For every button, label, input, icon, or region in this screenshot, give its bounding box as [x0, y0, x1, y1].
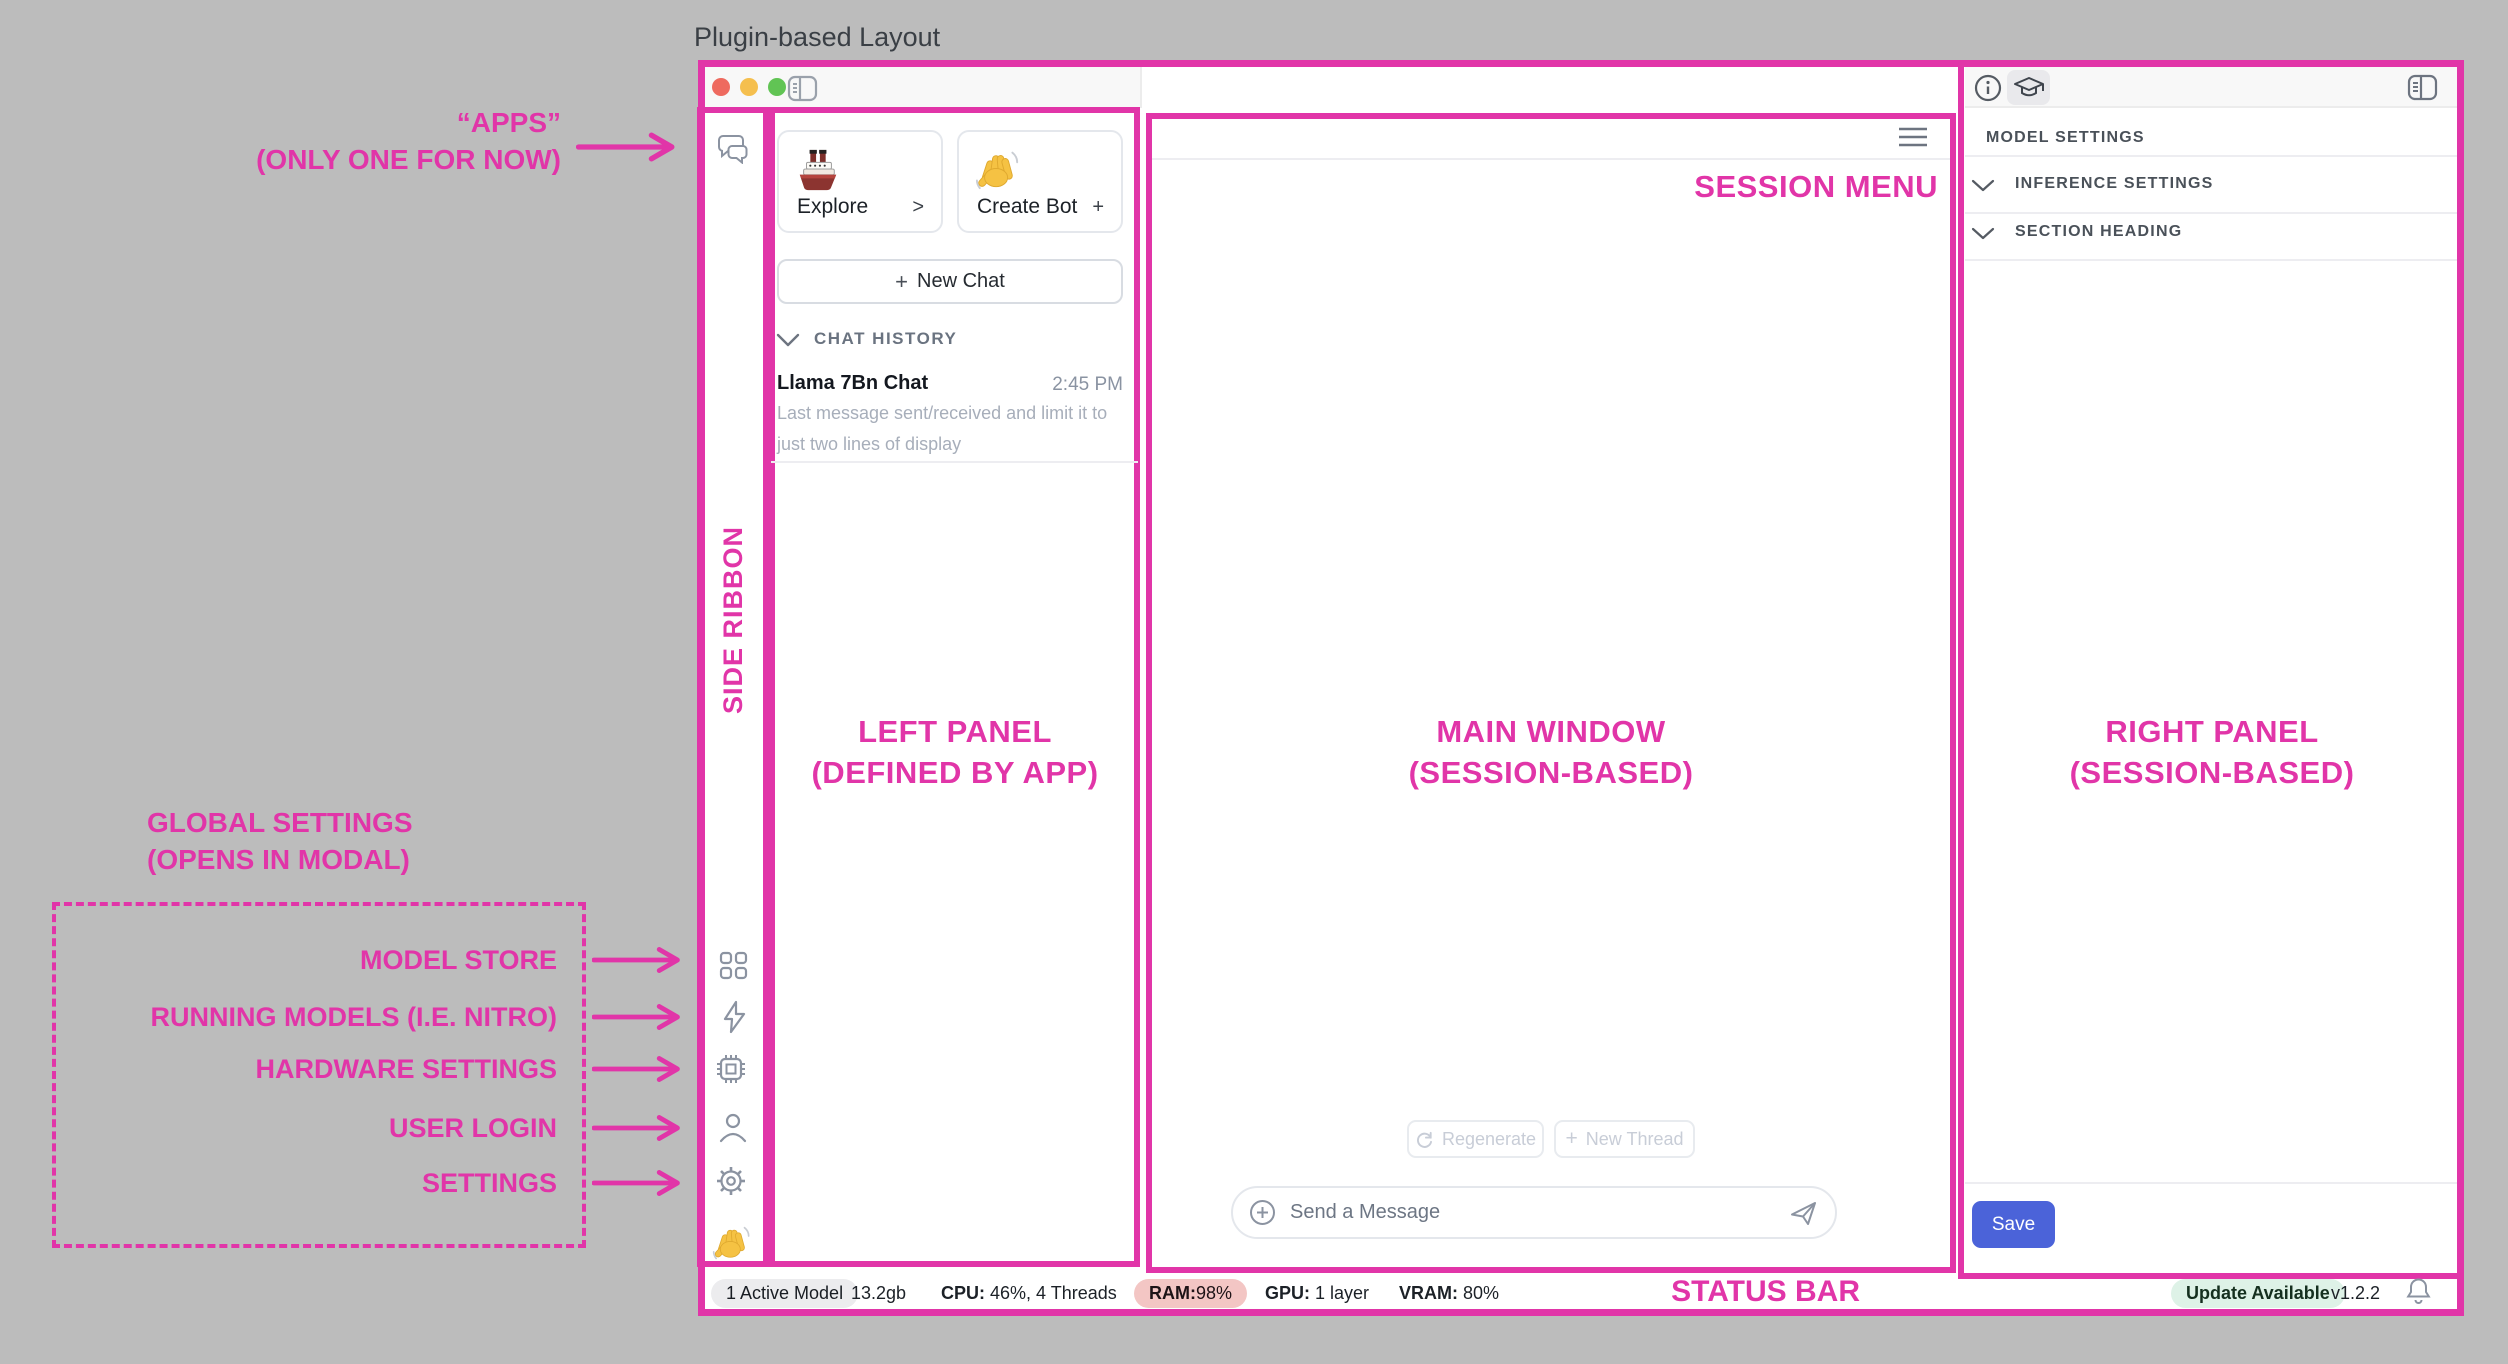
- chat-item-time: 2:45 PM: [1003, 374, 1123, 396]
- row-divider: [1965, 212, 2457, 214]
- memory-usage: 13.2gb: [851, 1283, 906, 1304]
- cpu-usage: CPU: 46%, 4 Threads: [941, 1283, 1117, 1304]
- send-icon[interactable]: [1789, 1199, 1819, 1227]
- explore-card[interactable]: Explore >: [777, 130, 943, 233]
- update-available-badge[interactable]: Update Available: [2171, 1279, 2345, 1308]
- main-window-box: [1146, 113, 1956, 1273]
- side-ribbon-annotation: SIDE RIBBON: [711, 520, 755, 720]
- model-settings-header: MODEL SETTINGS: [1986, 129, 2145, 147]
- settings-gear-icon[interactable]: [714, 1164, 748, 1198]
- close-window-button[interactable]: [712, 78, 730, 96]
- attach-plus-icon[interactable]: [1249, 1199, 1276, 1226]
- inference-settings-row[interactable]: INFERENCE SETTINGS: [2015, 175, 2214, 193]
- regenerate-button-label: Regenerate: [1442, 1129, 1536, 1150]
- wave-hand-icon[interactable]: [710, 1221, 754, 1261]
- section-heading-row[interactable]: SECTION HEADING: [2015, 223, 2182, 241]
- minimize-window-button[interactable]: [740, 78, 758, 96]
- model-store-annotation: MODEL STORE: [57, 945, 557, 976]
- running-models-arrow: [592, 1003, 688, 1031]
- user-login-arrow: [592, 1114, 688, 1142]
- main-window-annotation: MAIN WINDOW (SESSION-BASED): [1371, 711, 1731, 793]
- status-bar-annotation: STATUS BAR: [1598, 1275, 1860, 1309]
- user-login-icon[interactable]: [716, 1110, 750, 1144]
- settings-annotation: SETTINGS: [57, 1168, 557, 1199]
- chat-item-preview: Last message sent/received and limit it …: [777, 398, 1129, 460]
- settings-arrow: [592, 1169, 688, 1197]
- new-thread-button[interactable]: + New Thread: [1554, 1120, 1695, 1158]
- gpu-usage: GPU: 1 layer: [1265, 1283, 1369, 1304]
- hardware-settings-annotation: HARDWARE SETTINGS: [57, 1054, 557, 1085]
- create-bot-card[interactable]: Create Bot +: [957, 130, 1123, 233]
- hardware-settings-arrow: [592, 1055, 688, 1083]
- row-divider: [1965, 155, 2457, 157]
- explore-card-label: Explore: [797, 195, 868, 219]
- main-toolbar-divider: [1152, 158, 1950, 160]
- wave-hand-icon: [975, 145, 1021, 191]
- list-divider: [771, 461, 1138, 463]
- app-version: v1.2.2: [2331, 1283, 2380, 1304]
- right-panel-annotation: RIGHT PANEL (SESSION-BASED): [2031, 711, 2393, 793]
- plus-icon: +: [1566, 1127, 1578, 1151]
- chat-history-header: CHAT HISTORY: [814, 329, 957, 349]
- message-input-container: [1231, 1186, 1837, 1239]
- new-thread-button-label: New Thread: [1586, 1129, 1684, 1150]
- new-chat-button-label: New Chat: [917, 270, 1005, 293]
- regenerate-button[interactable]: Regenerate: [1407, 1120, 1544, 1158]
- session-menu-annotation: SESSION MENU: [1628, 169, 1938, 205]
- running-models-icon[interactable]: [718, 999, 750, 1035]
- vram-usage: VRAM: 80%: [1399, 1283, 1499, 1304]
- new-chat-button[interactable]: + New Chat: [777, 259, 1123, 304]
- toggle-left-sidebar-icon[interactable]: [787, 75, 818, 102]
- running-models-annotation: RUNNING MODELS (I.E. NITRO): [57, 1002, 557, 1033]
- ram-usage-badge: RAM: 98%: [1134, 1279, 1247, 1308]
- chevron-down-icon[interactable]: [1971, 227, 1995, 241]
- save-divider: [1965, 1182, 2457, 1184]
- mockup-canvas: Plugin-based Layout SIDE: [0, 0, 2508, 1364]
- explore-card-chevron: >: [912, 196, 924, 219]
- right-panel-box: [1958, 61, 2464, 1279]
- left-panel-annotation: LEFT PANEL (DEFINED BY APP): [770, 711, 1140, 793]
- notifications-bell-icon[interactable]: [2405, 1276, 2432, 1307]
- hardware-settings-icon[interactable]: [713, 1051, 749, 1087]
- message-input[interactable]: [1290, 1201, 1775, 1224]
- chevron-down-icon[interactable]: [776, 333, 800, 348]
- save-button[interactable]: Save: [1972, 1201, 2055, 1248]
- create-bot-card-label: Create Bot: [977, 195, 1077, 219]
- global-settings-annotation: GLOBAL SETTINGS (OPENS IN MODAL): [147, 804, 413, 878]
- model-store-arrow: [592, 946, 688, 974]
- chevron-down-icon[interactable]: [1971, 179, 1995, 193]
- model-store-icon[interactable]: [715, 947, 751, 983]
- refresh-icon: [1415, 1130, 1434, 1149]
- chat-app-icon[interactable]: [716, 133, 750, 164]
- ship-icon: [795, 147, 841, 193]
- apps-arrow: [576, 132, 684, 162]
- hamburger-menu-icon[interactable]: [1897, 126, 1929, 148]
- row-divider: [1965, 259, 2457, 261]
- maximize-window-button[interactable]: [768, 78, 786, 96]
- page-title: Plugin-based Layout: [694, 22, 940, 53]
- active-models-badge: 1 Active Model: [711, 1279, 858, 1308]
- create-bot-card-plus: +: [1092, 196, 1104, 219]
- apps-annotation: “APPS” (ONLY ONE FOR NOW): [205, 104, 561, 178]
- plus-icon: +: [895, 269, 908, 295]
- user-login-annotation: USER LOGIN: [57, 1113, 557, 1144]
- chat-item-title[interactable]: Llama 7Bn Chat: [777, 372, 928, 395]
